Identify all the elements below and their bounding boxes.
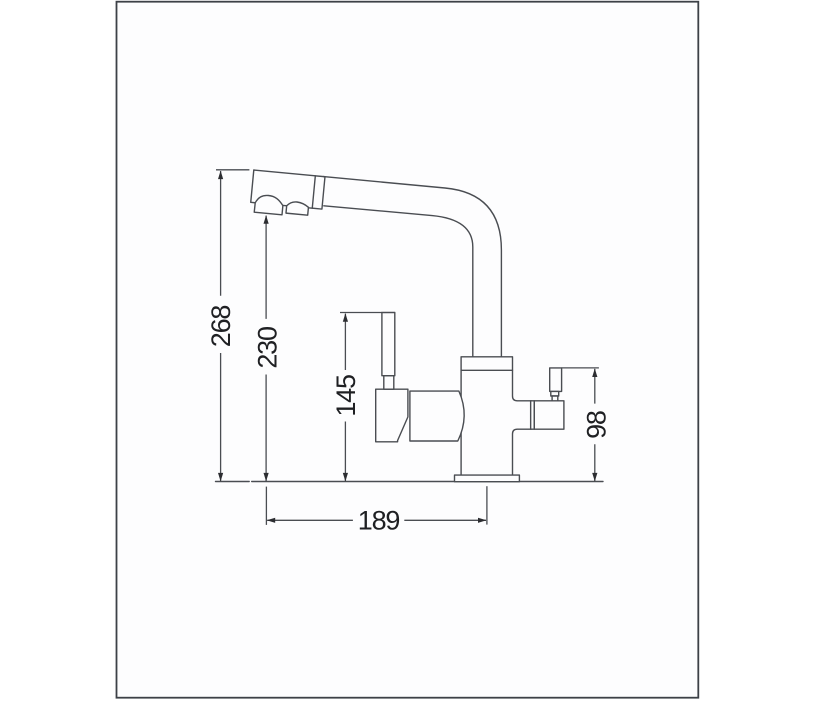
svg-text:189: 189: [358, 506, 400, 536]
svg-text:145: 145: [331, 375, 361, 417]
svg-text:230: 230: [253, 327, 283, 369]
svg-text:98: 98: [581, 411, 611, 439]
svg-text:268: 268: [206, 306, 236, 348]
